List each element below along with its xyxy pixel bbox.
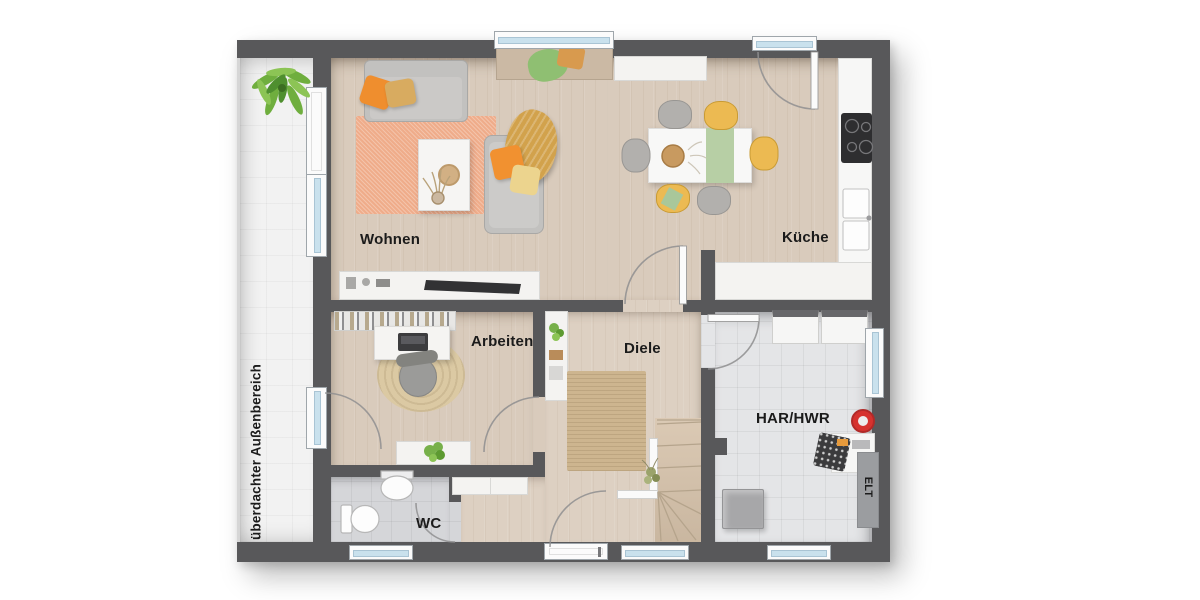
wc-sink [381, 471, 413, 500]
sideboard-decor [346, 277, 390, 289]
cooktop [841, 113, 873, 163]
toilet [341, 505, 379, 533]
stair-plant [642, 458, 660, 484]
room-label-arbeiten: Arbeiten [471, 333, 533, 350]
room-label-wohnen: Wohnen [360, 231, 420, 248]
laptop [398, 333, 428, 351]
office-sideboard-plant [424, 442, 445, 462]
plan-overlay-graphics [0, 0, 1200, 600]
door-leaves [680, 52, 819, 322]
kitchen-sink [843, 189, 872, 250]
dining-centerpiece [662, 142, 706, 174]
tv [424, 280, 521, 294]
room-label-har-hwr: HAR/HWR [756, 410, 830, 427]
room-label-wc: WC [416, 515, 441, 532]
dried-grass-vase [423, 170, 450, 204]
outdoor-plant [250, 65, 313, 116]
stair-treads [657, 420, 701, 541]
room-label-diele: Diele [624, 340, 661, 357]
floor-plan: Wohnen Küche Arbeiten Diele HAR/HWR WC E… [0, 0, 1200, 600]
room-label-kueche: Küche [782, 229, 829, 246]
wardrobe-plant [549, 323, 564, 380]
